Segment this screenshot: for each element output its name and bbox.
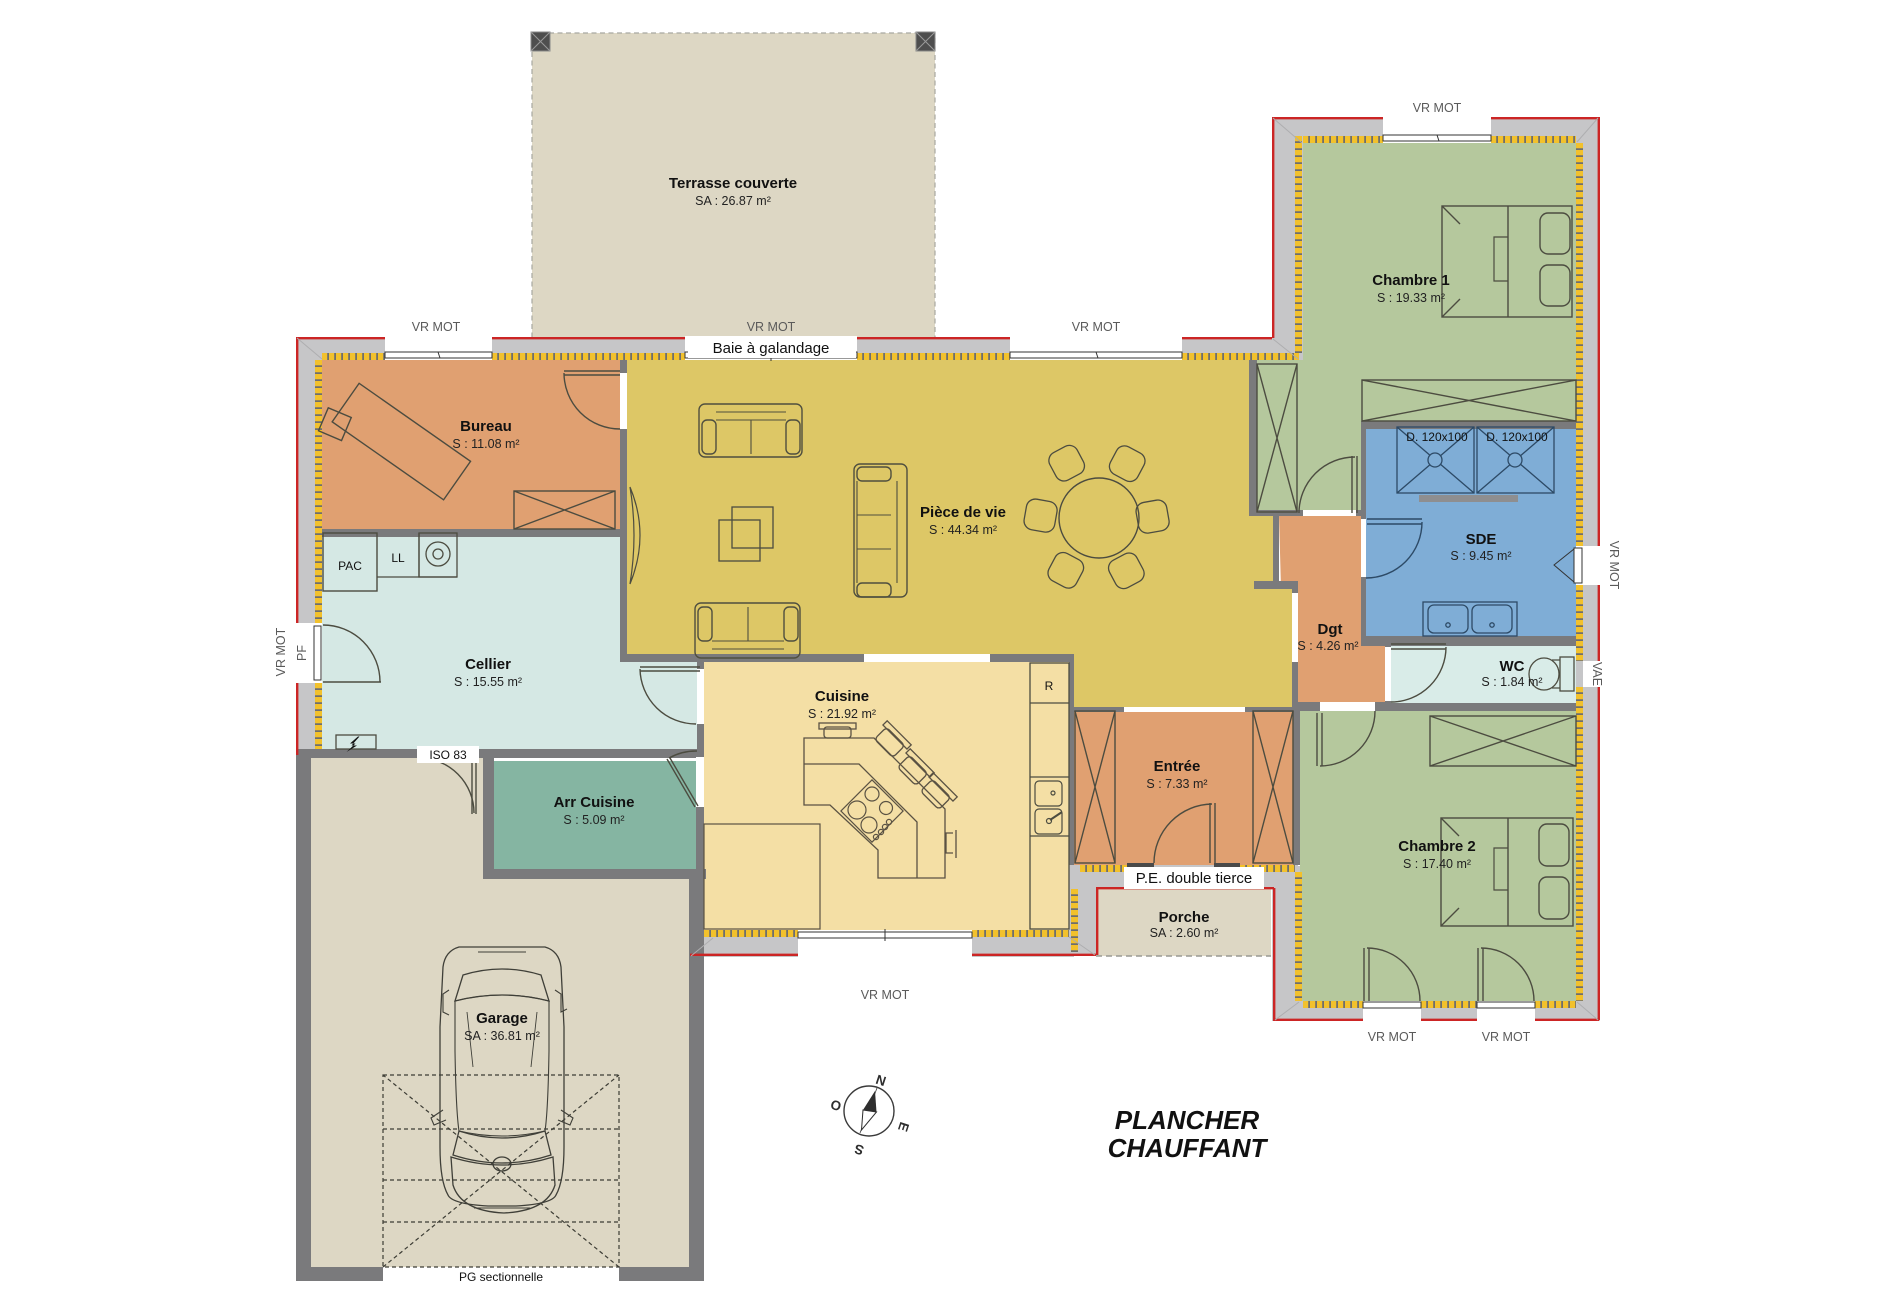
svg-text:SDE: SDE xyxy=(1466,531,1497,548)
svg-text:S : 4.26 m²: S : 4.26 m² xyxy=(1297,639,1358,653)
svg-text:Garage: Garage xyxy=(476,1010,528,1027)
svg-text:LL: LL xyxy=(391,551,405,565)
svg-text:SA : 2.60 m²: SA : 2.60 m² xyxy=(1150,926,1219,940)
svg-text:VR MOT: VR MOT xyxy=(1482,1030,1531,1044)
svg-text:S : 21.92 m²: S : 21.92 m² xyxy=(808,707,876,721)
svg-text:Entrée: Entrée xyxy=(1154,758,1201,775)
svg-text:VR MOT: VR MOT xyxy=(861,988,910,1002)
svg-text:VR MOT: VR MOT xyxy=(412,320,461,334)
svg-text:S : 44.34 m²: S : 44.34 m² xyxy=(929,523,997,537)
svg-text:S : 9.45 m²: S : 9.45 m² xyxy=(1450,549,1511,563)
svg-text:Pièce de vie: Pièce de vie xyxy=(920,504,1006,521)
svg-text:Porche: Porche xyxy=(1159,909,1210,926)
svg-text:Bureau: Bureau xyxy=(460,418,512,435)
svg-text:Terrasse couverte: Terrasse couverte xyxy=(669,175,797,192)
svg-text:PF: PF xyxy=(295,645,309,661)
svg-text:S : 11.08 m²: S : 11.08 m² xyxy=(452,437,519,451)
svg-text:S : 7.33 m²: S : 7.33 m² xyxy=(1146,777,1207,791)
svg-text:S : 15.55 m²: S : 15.55 m² xyxy=(454,675,522,689)
svg-text:SA : 36.81 m²: SA : 36.81 m² xyxy=(464,1029,540,1043)
svg-text:CHAUFFANT: CHAUFFANT xyxy=(1108,1133,1269,1163)
svg-text:Arr Cuisine: Arr Cuisine xyxy=(554,794,635,811)
svg-text:S : 17.40 m²: S : 17.40 m² xyxy=(1403,857,1471,871)
svg-text:P.E. double tierce: P.E. double tierce xyxy=(1136,870,1252,887)
svg-text:PLANCHER: PLANCHER xyxy=(1115,1105,1260,1135)
svg-text:WC: WC xyxy=(1500,658,1525,675)
svg-text:PG sectionnelle: PG sectionnelle xyxy=(459,1270,543,1284)
svg-text:S : 1.84 m²: S : 1.84 m² xyxy=(1481,675,1542,689)
svg-text:D. 120x100: D. 120x100 xyxy=(1486,430,1548,444)
svg-text:Chambre 1: Chambre 1 xyxy=(1372,272,1450,289)
svg-text:R: R xyxy=(1045,679,1054,693)
svg-text:S : 5.09 m²: S : 5.09 m² xyxy=(563,813,624,827)
svg-text:Dgt: Dgt xyxy=(1318,621,1343,638)
svg-text:VR MOT: VR MOT xyxy=(1072,320,1121,334)
svg-text:Cellier: Cellier xyxy=(465,656,511,673)
svg-text:VR MOT: VR MOT xyxy=(1413,101,1462,115)
svg-text:VR MOT: VR MOT xyxy=(747,320,796,334)
svg-text:Baie à galandage: Baie à galandage xyxy=(713,340,830,357)
svg-text:VAE: VAE xyxy=(1590,662,1604,686)
svg-text:SA : 26.87 m²: SA : 26.87 m² xyxy=(695,194,771,208)
svg-text:S : 19.33 m²: S : 19.33 m² xyxy=(1377,291,1445,305)
svg-text:PAC: PAC xyxy=(338,559,362,573)
svg-text:VR MOT: VR MOT xyxy=(1607,541,1621,590)
svg-text:VR MOT: VR MOT xyxy=(1368,1030,1417,1044)
svg-text:D. 120x100: D. 120x100 xyxy=(1406,430,1468,444)
svg-text:ISO 83: ISO 83 xyxy=(429,748,467,762)
svg-text:Chambre 2: Chambre 2 xyxy=(1398,838,1476,855)
svg-text:Cuisine: Cuisine xyxy=(815,688,869,705)
svg-text:VR MOT: VR MOT xyxy=(274,627,288,676)
